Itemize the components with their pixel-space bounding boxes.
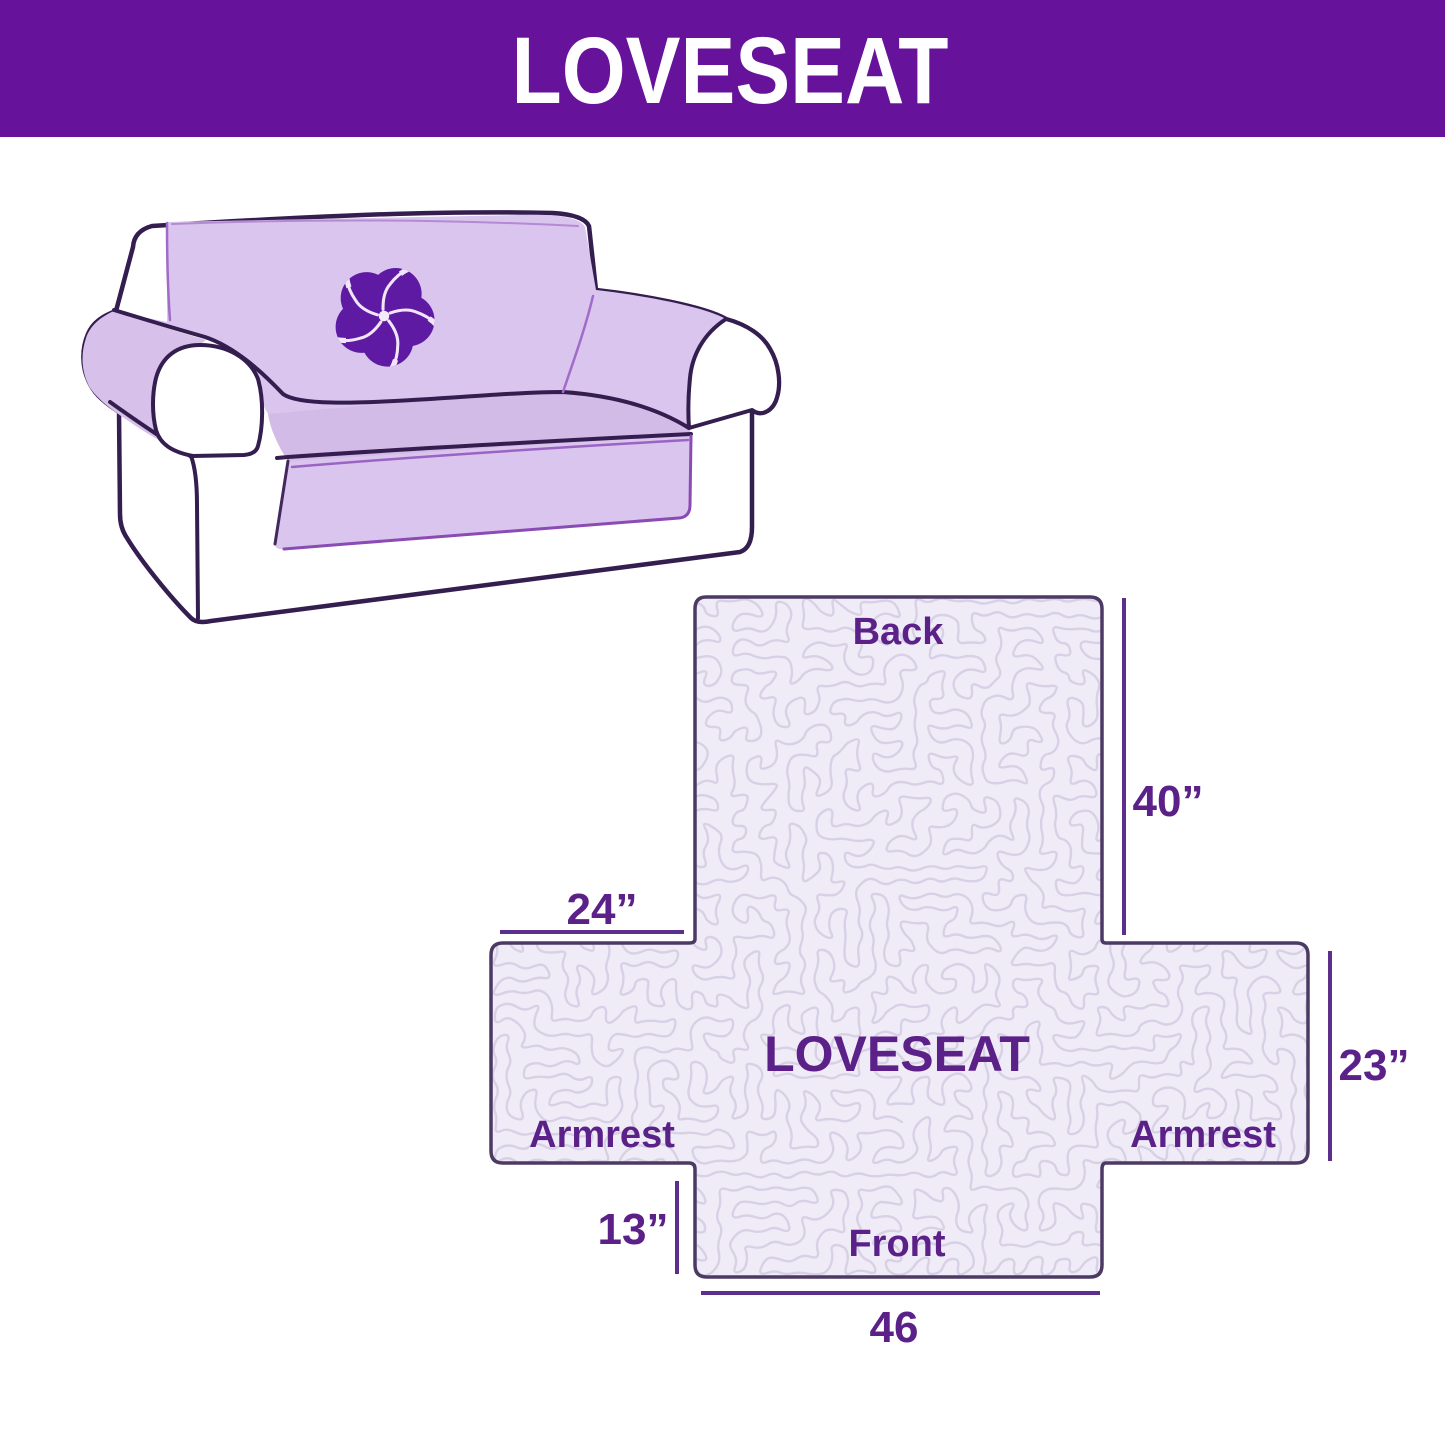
svg-text:Front: Front	[848, 1223, 945, 1265]
svg-text:46: 46	[870, 1303, 919, 1352]
svg-text:13”: 13”	[598, 1205, 669, 1254]
svg-text:Back: Back	[853, 611, 945, 653]
svg-text:40”: 40”	[1133, 777, 1204, 826]
svg-text:Armrest: Armrest	[1130, 1114, 1276, 1156]
svg-text:Armrest: Armrest	[529, 1114, 675, 1156]
svg-text:LOVESEAT: LOVESEAT	[764, 1026, 1030, 1082]
svg-text:23”: 23”	[1339, 1041, 1410, 1090]
svg-text:24”: 24”	[567, 885, 638, 934]
svg-text:LOVESEAT: LOVESEAT	[512, 18, 949, 124]
